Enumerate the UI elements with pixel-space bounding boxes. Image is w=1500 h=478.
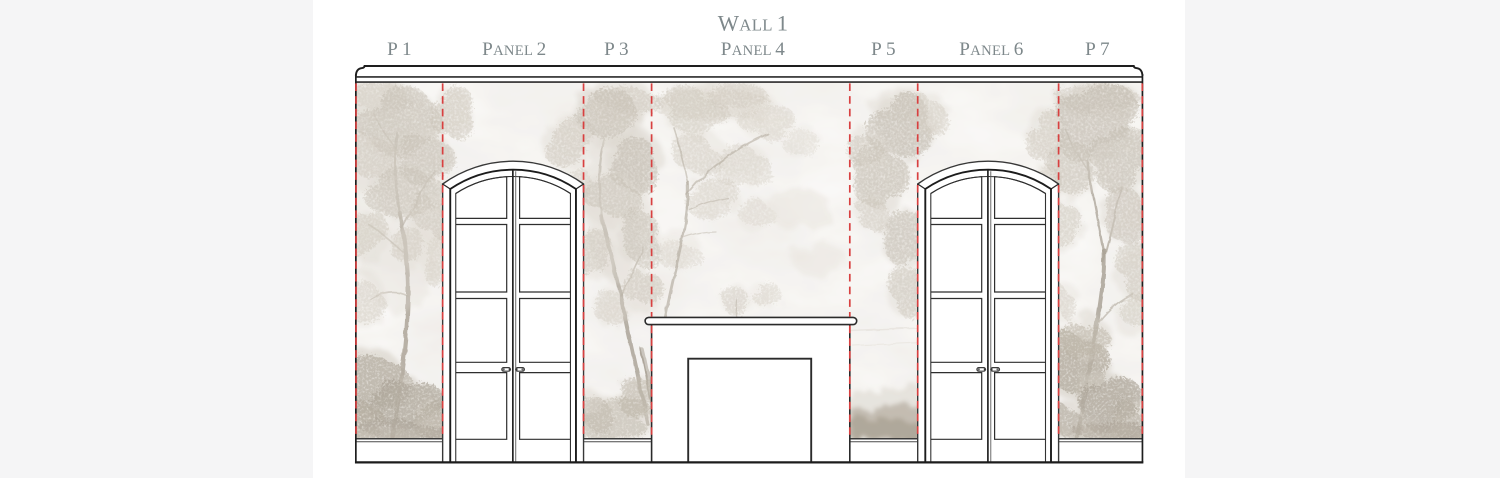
svg-text:P 7: P 7 (1085, 39, 1110, 60)
svg-text:PANEL 4: PANEL 4 (721, 39, 786, 60)
svg-text:P 3: P 3 (604, 39, 629, 60)
svg-text:PANEL 6: PANEL 6 (959, 39, 1024, 60)
svg-text:P 1: P 1 (387, 39, 412, 60)
svg-text:PANEL 2: PANEL 2 (482, 39, 546, 60)
svg-text:P 5: P 5 (871, 39, 896, 60)
